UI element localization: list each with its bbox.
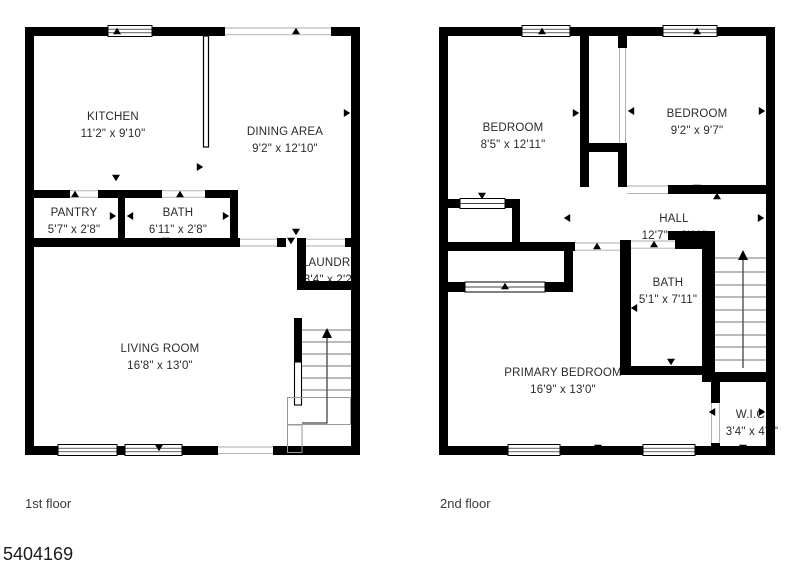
floor-caption-2: 2nd floor [440,496,491,511]
room-dimensions: 16'9" x 13'0" [504,382,622,399]
room-label: PRIMARY BEDROOM16'9" x 13'0" [504,365,622,399]
room-dimensions: 5'1" x 7'11" [639,292,697,309]
room-label: BEDROOM9'2" x 9'7" [667,106,728,140]
room-name: BEDROOM [667,106,728,123]
floor-plan-page: KITCHEN11'2" x 9'10"DINING AREA9'2" x 12… [0,0,800,571]
room-name: W.I.C. [726,407,778,424]
room-name: LAUNDRY [302,255,358,272]
room-dimensions: 3'4" x 2'2" [302,272,358,289]
room-label: PANTRY5'7" x 2'8" [48,205,100,239]
room-dimensions: 11'2" x 9'10" [81,126,146,143]
room-dimensions: 6'11" x 2'8" [149,222,207,239]
room-name: BATH [639,275,697,292]
room-name: PRIMARY BEDROOM [504,365,622,382]
room-label: W.I.C.3'4" x 4'9" [726,407,778,441]
room-label: HALL12'7" x 2'11" [642,211,707,245]
room-dimensions: 9'2" x 12'10" [247,141,323,158]
room-name: BEDROOM [481,120,546,137]
room-label: LIVING ROOM16'8" x 13'0" [121,341,200,375]
room-dimensions: 5'7" x 2'8" [48,222,100,239]
room-dimensions: 9'2" x 9'7" [667,123,728,140]
watermark-number: 5404169 [3,544,73,565]
room-label: LAUNDRY3'4" x 2'2" [302,255,358,289]
room-name: DINING AREA [247,124,323,141]
room-labels-layer: KITCHEN11'2" x 9'10"DINING AREA9'2" x 12… [0,0,800,571]
room-dimensions: 16'8" x 13'0" [121,358,200,375]
room-label: BATH6'11" x 2'8" [149,205,207,239]
room-dimensions: 3'4" x 4'9" [726,424,778,441]
room-dimensions: 8'5" x 12'11" [481,137,546,154]
floor-caption-1: 1st floor [25,496,71,511]
room-name: KITCHEN [81,109,146,126]
room-label: BATH5'1" x 7'11" [639,275,697,309]
room-name: PANTRY [48,205,100,222]
room-name: BATH [149,205,207,222]
room-label: KITCHEN11'2" x 9'10" [81,109,146,143]
room-label: DINING AREA9'2" x 12'10" [247,124,323,158]
room-label: BEDROOM8'5" x 12'11" [481,120,546,154]
room-name: LIVING ROOM [121,341,200,358]
room-name: HALL [642,211,707,228]
room-dimensions: 12'7" x 2'11" [642,228,707,245]
